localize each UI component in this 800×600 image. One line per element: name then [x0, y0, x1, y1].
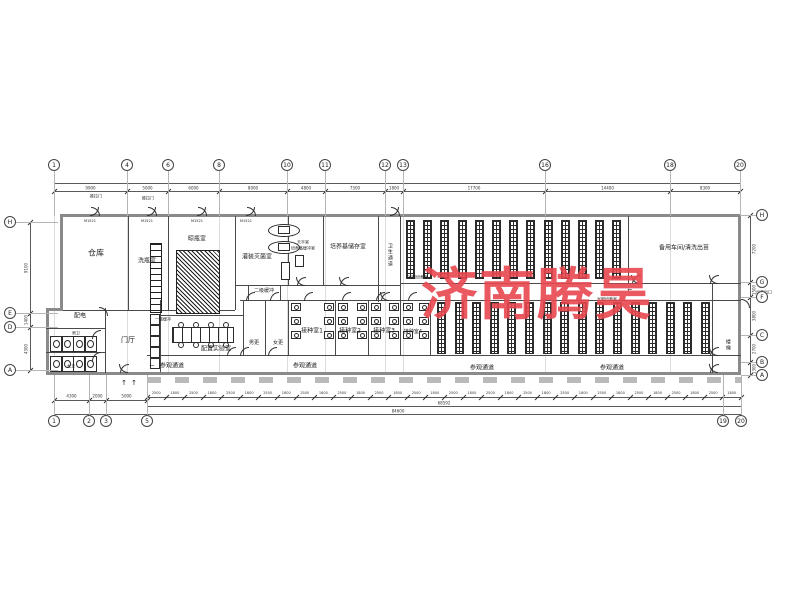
dim-value: 2500 [597, 391, 606, 395]
axis-leader [219, 171, 220, 216]
axis-leader [54, 171, 55, 216]
lab-stool [193, 342, 199, 348]
dim-value: 1800 [690, 391, 699, 395]
dim-line [54, 191, 740, 192]
axis-leader [741, 215, 757, 216]
axis-leader [741, 335, 757, 336]
dim-line [147, 406, 741, 407]
toilet [76, 340, 83, 348]
door-tag-2: M1521 [141, 219, 153, 223]
grid-bubble: H [756, 209, 768, 221]
room-bottle-drying: 晾瓶室 [188, 237, 206, 244]
grid-bubble: 19 [717, 415, 729, 427]
room-filling-sterilizing: 灌装灭菌室 [242, 255, 272, 262]
dim-value: 2500 [375, 391, 384, 395]
grid-bubble: A [4, 364, 16, 376]
dim-value: 2500 [709, 391, 718, 395]
interior-wall [235, 216, 236, 310]
interior-wall [400, 300, 401, 355]
interior-wall [128, 216, 129, 310]
grid-bubble: B [756, 356, 768, 368]
lab-stool [178, 342, 184, 348]
dim-value: 1500 [752, 284, 757, 294]
toilet [53, 340, 60, 348]
room-inoculation-2: 接种室2 [339, 329, 361, 336]
axis-leader [741, 375, 742, 415]
grid-bubble: D [4, 321, 16, 333]
interior-wall [280, 285, 281, 300]
dim-value: 17700 [468, 186, 481, 191]
interior-wall [288, 300, 289, 355]
room-women-change: 女更 [273, 341, 283, 347]
dim-total: 84600 [392, 409, 405, 414]
grid-bubble: A [756, 369, 768, 381]
dim-value: 1800 [467, 391, 476, 395]
clean-bench-fan [406, 305, 411, 310]
interior-wall [335, 300, 336, 355]
dim-value: 7200 [752, 243, 757, 253]
dim-value: 2500 [263, 391, 272, 395]
locker [150, 325, 160, 336]
grid-bubble: 16 [539, 159, 551, 171]
axis-leader [14, 222, 58, 223]
interior-wall [400, 216, 401, 302]
toilet [87, 340, 94, 348]
exterior-wall [46, 308, 49, 375]
dim-value: 1800 [579, 391, 588, 395]
corridor-sanitary: 卫生通道 [386, 243, 392, 267]
dim-value: 1800 [393, 391, 402, 395]
room-stair: 楼梯 [724, 339, 730, 351]
dim-value: 3800 [752, 311, 757, 321]
dim-value: 1800 [430, 391, 439, 395]
arrow-corridor-left: ← [149, 364, 154, 371]
locker [150, 347, 160, 358]
axis-leader [147, 375, 148, 415]
interior-wall [368, 300, 369, 355]
axis-leader [741, 375, 757, 376]
shelf-rack [150, 243, 162, 313]
dim-value: 1800 [356, 391, 365, 395]
lab-stool [193, 322, 199, 328]
door-leaf [99, 307, 108, 316]
door-leaf [268, 347, 277, 356]
dim-value: 1800 [170, 391, 179, 395]
dim-value: 2500 [560, 391, 569, 395]
grid-bubble: 10 [281, 159, 293, 171]
axis-leader [54, 375, 55, 415]
clean-bench-fan [360, 305, 365, 310]
dim-value: 1800 [653, 391, 662, 395]
clean-bench-fan [374, 305, 379, 310]
equipment [281, 262, 290, 280]
dim-value: 9900 [85, 186, 95, 191]
room-balance: 天平室 [297, 241, 309, 246]
interior-wall [147, 355, 741, 356]
dim-value: 2500 [449, 391, 458, 395]
dim-value: 1800 [727, 391, 736, 395]
dim-value: 1800 [616, 391, 625, 395]
dim-value: 2700 [752, 343, 757, 353]
dim-value: 4300 [66, 394, 76, 399]
axis-leader [287, 171, 288, 216]
dim-value: 8000 [248, 186, 258, 191]
arrow-entry-1: ↑ [121, 379, 127, 387]
room-power: 配电 [74, 314, 86, 321]
grid-bubble: H [4, 216, 16, 228]
grid-bubble: 20 [735, 415, 747, 427]
room-buffer-1: 一级缓冲 [155, 318, 171, 323]
toilet [76, 360, 83, 368]
watermark-text: 济南腾昊 [421, 250, 653, 331]
autoclave-body [278, 243, 290, 251]
door-tag-3: M1521 [191, 219, 203, 223]
grid-bubble: 4 [121, 159, 133, 171]
interior-wall [378, 216, 379, 302]
interior-wall [235, 285, 400, 286]
interior-wall [46, 328, 105, 329]
axis-leader [168, 171, 169, 216]
dim-value: 2500 [189, 391, 198, 395]
room-bottle-washing: 洗瓶室 [138, 259, 156, 266]
dim-value: 2000 [92, 394, 102, 399]
room-inoculation-4: 接种室4 [404, 330, 422, 336]
clean-bench-fan [327, 333, 332, 338]
door-leaf [240, 347, 249, 356]
dim-value: 1800 [542, 391, 551, 395]
room-warehouse: 仓库 [88, 248, 104, 257]
clean-bench-fan [374, 319, 379, 324]
lab-stool [178, 322, 184, 328]
clean-bench-fan [341, 305, 346, 310]
clean-bench-fan [392, 319, 397, 324]
dim-value: 1800 [319, 391, 328, 395]
dim-value: 7500 [350, 186, 360, 191]
dim-value: 2500 [412, 391, 421, 395]
clean-bench-fan [392, 305, 397, 310]
grid-bubble: 18 [664, 159, 676, 171]
clean-bench-fan [294, 333, 299, 338]
dim-value: 2500 [152, 391, 161, 395]
clean-bench-fan [294, 305, 299, 310]
dim-subtotal: 68592 [438, 401, 451, 406]
dim-value: 1800 [245, 391, 254, 395]
dim-value: 2500 [523, 391, 532, 395]
sidewalk-band [147, 377, 741, 383]
door-leaf [92, 330, 101, 339]
dim-value: 1800 [505, 391, 514, 395]
room-medium-storage: 培养基储存室 [330, 245, 366, 252]
corridor-visit-1: 参观通道 [160, 364, 184, 371]
grid-bubble: 1 [48, 159, 60, 171]
exterior-wall [738, 214, 741, 375]
door-leaf [304, 292, 313, 301]
dim-value: 9100 [24, 262, 29, 272]
exterior-wall [46, 372, 741, 375]
clean-bench-fan [327, 305, 332, 310]
dim-value: 2500 [226, 391, 235, 395]
axis-leader [325, 171, 326, 216]
interior-wall [265, 300, 266, 355]
dim-value: 5000 [142, 186, 152, 191]
grid-bubble: 11 [319, 159, 331, 171]
axis-leader [741, 362, 757, 363]
clean-bench-fan [341, 319, 346, 324]
toilet [64, 340, 71, 348]
drying-area-hatch [176, 250, 220, 314]
grid-bubble: 2 [83, 415, 95, 427]
room-buffer-2: 二级缓冲 [254, 289, 274, 295]
room-spare-workshop: 备用车间/清洗出苗 [659, 246, 709, 253]
lab-stool [223, 322, 229, 328]
axis-leader [670, 171, 671, 216]
clean-bench-fan [360, 319, 365, 324]
equipment [295, 255, 304, 267]
culture-rack [683, 302, 692, 354]
dim-line [54, 400, 147, 401]
axis-leader [723, 375, 724, 415]
grid-bubble: 20 [734, 159, 746, 171]
grid-bubble: 13 [397, 159, 409, 171]
dim-value: 6000 [188, 186, 198, 191]
interior-wall [105, 308, 106, 373]
dim-value: 1800 [208, 391, 217, 395]
culture-rack [666, 302, 675, 354]
grid-bubble: 5 [141, 415, 153, 427]
lab-stool [208, 322, 214, 328]
locker [150, 336, 160, 347]
dim-line [54, 414, 741, 415]
room-inoculation-3: 接种室3 [373, 329, 395, 336]
room-men-wc: 男卫 [72, 332, 80, 337]
floor-plan-canvas: 仓库洗瓶室晾瓶室灌装灭菌室天平室培养基缓冲室培养基储存室卫生通道光照培养室备用车… [0, 0, 800, 600]
room-prep-lab: 配置实验室 [201, 347, 231, 354]
axis-leader [741, 297, 757, 298]
autoclave-body [278, 226, 290, 234]
interior-wall [243, 300, 244, 355]
axis-leader [14, 370, 58, 371]
axis-leader [385, 171, 386, 216]
corridor-visit-4: 参观通道 [600, 366, 624, 373]
grid-bubble: 12 [379, 159, 391, 171]
grid-bubble: 8 [213, 159, 225, 171]
dim-value: 14400 [601, 186, 614, 191]
dim-value: 1800 [282, 391, 291, 395]
interior-wall [160, 315, 243, 316]
axis-leader [545, 171, 546, 216]
tag-sliding-door-2: 推拉门 [142, 197, 154, 202]
dim-value: 2500 [300, 391, 309, 395]
dim-value: 2500 [634, 391, 643, 395]
dim-value: 2500 [486, 391, 495, 395]
clean-bench-fan [406, 319, 411, 324]
dim-line [30, 222, 31, 370]
grid-bubble: 3 [100, 415, 112, 427]
door-leaf [342, 292, 351, 301]
culture-rack [406, 220, 415, 279]
grid-bubble: 1 [48, 415, 60, 427]
room-men-change: 男更 [249, 341, 259, 347]
axis-leader [127, 171, 128, 216]
corridor-visit-3: 参观通道 [470, 366, 494, 373]
axis-leader [14, 327, 58, 328]
grid-bubble: G [756, 276, 768, 288]
dim-value: 4800 [301, 186, 311, 191]
grid-bubble: 6 [162, 159, 174, 171]
interior-wall [323, 216, 324, 285]
axis-leader [14, 313, 58, 314]
door-leaf [92, 352, 101, 361]
interior-wall [712, 283, 713, 373]
axis-leader [741, 282, 757, 283]
toilet [87, 360, 94, 368]
grid-bubble: E [4, 307, 16, 319]
dim-value: 2500 [672, 391, 681, 395]
tag-sliding-door-1: 推拉门 [90, 195, 102, 200]
corridor-visit-2: 参观通道 [293, 364, 317, 371]
room-women-wc: 女卫 [67, 365, 75, 370]
exterior-wall [60, 214, 63, 311]
dim-value: 5000 [121, 394, 131, 399]
dim-value: 1400 [24, 315, 29, 325]
axis-leader [89, 375, 90, 415]
exterior-wall [46, 308, 63, 311]
door-tag-4: M1521 [240, 219, 252, 223]
axis-leader [403, 171, 404, 216]
interior-wall [168, 216, 169, 310]
room-medium-buffer: 培养基缓冲室 [291, 247, 315, 252]
dim-value: 8300 [700, 186, 710, 191]
clean-bench-fan [294, 319, 299, 324]
room-lobby: 门厅 [121, 336, 135, 344]
grid-bubble: F [756, 291, 768, 303]
dim-value: 2500 [337, 391, 346, 395]
grid-bubble: C [756, 329, 768, 341]
arrow-entry-2: ↑ [131, 379, 137, 387]
axis-leader [740, 171, 741, 216]
axis-leader [106, 375, 107, 415]
room-inoculation-1: 接种室1 [301, 329, 323, 336]
door-leaf [741, 299, 750, 308]
plan-layer: 仓库洗瓶室晾瓶室灌装灭菌室天平室培养基缓冲室培养基储存室卫生通道光照培养室备用车… [0, 0, 800, 600]
door-leaf [408, 292, 417, 301]
clean-bench-fan [327, 319, 332, 324]
lab-bench [172, 327, 234, 343]
clean-bench-fan [422, 333, 427, 338]
dim-line [54, 183, 740, 184]
door-tag-1: M1521 [84, 219, 96, 223]
dim-value: 1800 [389, 186, 399, 191]
dim-value: 4300 [24, 343, 29, 353]
toilet [53, 360, 60, 368]
